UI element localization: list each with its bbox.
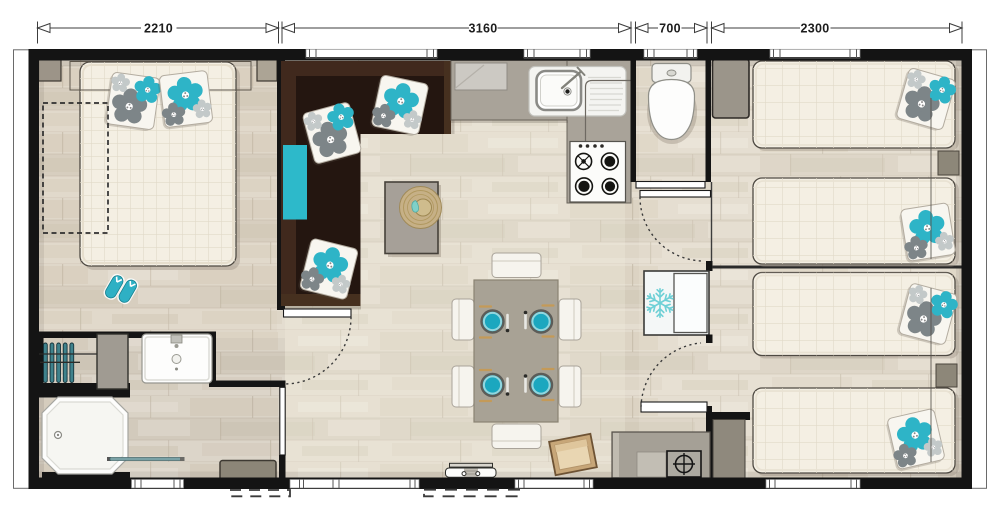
- svg-text:2300: 2300: [800, 22, 829, 36]
- svg-text:2210: 2210: [144, 22, 173, 36]
- svg-text:3160: 3160: [468, 22, 497, 36]
- svg-text:700: 700: [659, 22, 681, 36]
